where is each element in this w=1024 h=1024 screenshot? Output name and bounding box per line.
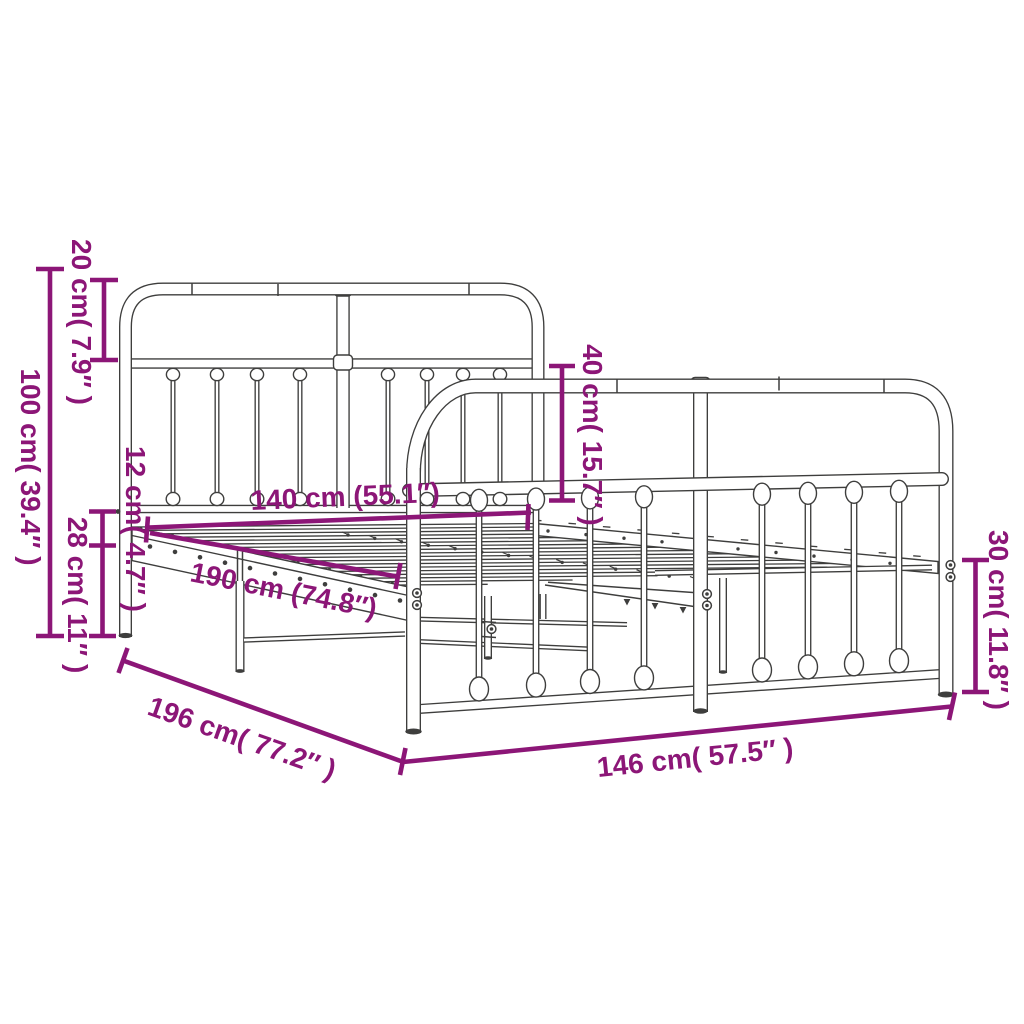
svg-text:20 cm( 7.9″ ): 20 cm( 7.9″ )	[66, 239, 97, 405]
svg-text:40 cm( 15.7″ ): 40 cm( 15.7″ )	[577, 344, 608, 526]
svg-text:28 cm( 11″ ): 28 cm( 11″ )	[62, 517, 93, 674]
svg-text:30 cm( 11.8″ ): 30 cm( 11.8″ )	[983, 530, 1014, 710]
svg-text:100 cm( 39.4″ ): 100 cm( 39.4″ )	[15, 368, 46, 565]
